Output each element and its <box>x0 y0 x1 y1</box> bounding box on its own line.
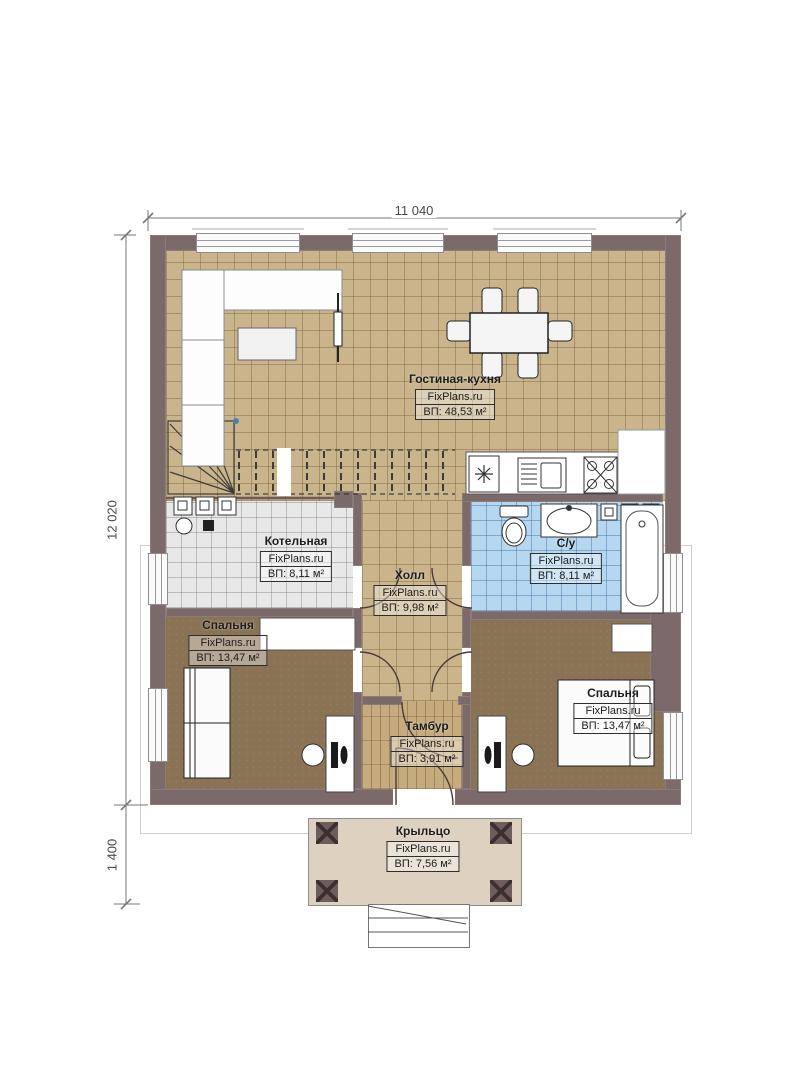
brand-watermark: FixPlans.ru <box>374 586 445 601</box>
window-top-2 <box>352 233 444 253</box>
room-area: ВП: 9,98 м² <box>374 601 445 615</box>
entry-door-opening <box>393 789 455 805</box>
room-name: Крыльцо <box>386 824 459 838</box>
wall-block-boiler-hall <box>334 491 353 508</box>
watermark-box: FixPlans.ru ВП: 9,98 м² <box>373 585 446 616</box>
room-label-porch: Крыльцо FixPlans.ru ВП: 7,56 м² <box>386 824 459 872</box>
watermark-box: FixPlans.ru ВП: 13,47 м² <box>573 703 652 734</box>
watermark-box: FixPlans.ru ВП: 3,91 м² <box>390 736 463 767</box>
room-label-hall: Холл FixPlans.ru ВП: 9,98 м² <box>373 568 446 616</box>
room-name: Спальня <box>573 686 652 700</box>
wall-bath-bedroom <box>471 611 665 620</box>
room-area: ВП: 3,91 м² <box>391 752 462 766</box>
window-right-bedroom <box>663 712 683 780</box>
room-area: ВП: 13,47 м² <box>574 719 651 733</box>
room-area: ВП: 8,11 м² <box>261 567 331 581</box>
wall-vestibule-top-right <box>458 696 471 705</box>
room-name: С/у <box>530 536 602 550</box>
room-label-bedroom-left: Спальня FixPlans.ru ВП: 13,47 м² <box>188 618 267 666</box>
room-name: Котельная <box>260 534 332 548</box>
dimension-width-label: 11 040 <box>392 203 437 218</box>
floor-plan: Гостиная-кухня FixPlans.ru ВП: 48,53 м² … <box>0 0 792 1080</box>
room-label-boiler: Котельная FixPlans.ru ВП: 8,11 м² <box>260 534 332 582</box>
window-top-3 <box>497 233 592 253</box>
porch-post <box>316 822 338 844</box>
wall-boiler-bedroom <box>166 608 353 617</box>
brand-watermark: FixPlans.ru <box>189 636 266 651</box>
room-name: Холл <box>373 568 446 582</box>
brand-watermark: FixPlans.ru <box>391 737 462 752</box>
room-name: Спальня <box>188 618 267 632</box>
window-left-bedroom <box>148 688 168 762</box>
wall-bath-top <box>462 493 663 502</box>
watermark-box: FixPlans.ru ВП: 13,47 м² <box>188 635 267 666</box>
room-area: ВП: 48,53 м² <box>416 405 493 419</box>
watermark-box: FixPlans.ru ВП: 8,11 м² <box>530 553 602 584</box>
brand-watermark: FixPlans.ru <box>574 704 651 719</box>
room-area: ВП: 13,47 м² <box>189 651 266 665</box>
room-name: Гостиная-кухня <box>409 372 501 386</box>
brand-watermark: FixPlans.ru <box>387 842 458 857</box>
wall-hall-left-mid <box>353 608 362 648</box>
room-label-vestibule: Тамбур FixPlans.ru ВП: 3,91 м² <box>390 719 463 767</box>
brand-watermark: FixPlans.ru <box>416 390 493 405</box>
window-right-bathroom <box>663 553 683 613</box>
room-label-bedroom-right: Спальня FixPlans.ru ВП: 13,47 м² <box>573 686 652 734</box>
wall-hall-right-upper <box>462 501 471 566</box>
window-left-boiler <box>148 553 168 605</box>
room-label-living: Гостиная-кухня FixPlans.ru ВП: 48,53 м² <box>409 372 501 420</box>
watermark-box: FixPlans.ru ВП: 48,53 м² <box>415 389 494 420</box>
room-area: ВП: 8,11 м² <box>531 569 601 583</box>
dimension-porch-label: 1 400 <box>105 836 120 875</box>
room-area: ВП: 7,56 м² <box>387 857 458 871</box>
brand-watermark: FixPlans.ru <box>531 554 601 569</box>
watermark-box: FixPlans.ru ВП: 7,56 м² <box>386 841 459 872</box>
wall-block-right <box>650 612 681 712</box>
window-top-1 <box>196 233 300 253</box>
porch-steps <box>368 904 470 948</box>
porch-post <box>316 880 338 902</box>
brand-watermark: FixPlans.ru <box>261 552 331 567</box>
wall-hall-left-upper <box>353 493 362 566</box>
wall-hall-right-mid <box>462 608 471 648</box>
wall-vestibule-top-left <box>362 696 402 705</box>
porch-post <box>490 880 512 902</box>
room-name: Тамбур <box>390 719 463 733</box>
wall-hall-left-lower <box>353 692 362 789</box>
porch-post <box>490 822 512 844</box>
watermark-box: FixPlans.ru ВП: 8,11 м² <box>260 551 332 582</box>
room-label-bathroom: С/у FixPlans.ru ВП: 8,11 м² <box>530 536 602 584</box>
dimension-height-label: 12 020 <box>105 497 120 543</box>
